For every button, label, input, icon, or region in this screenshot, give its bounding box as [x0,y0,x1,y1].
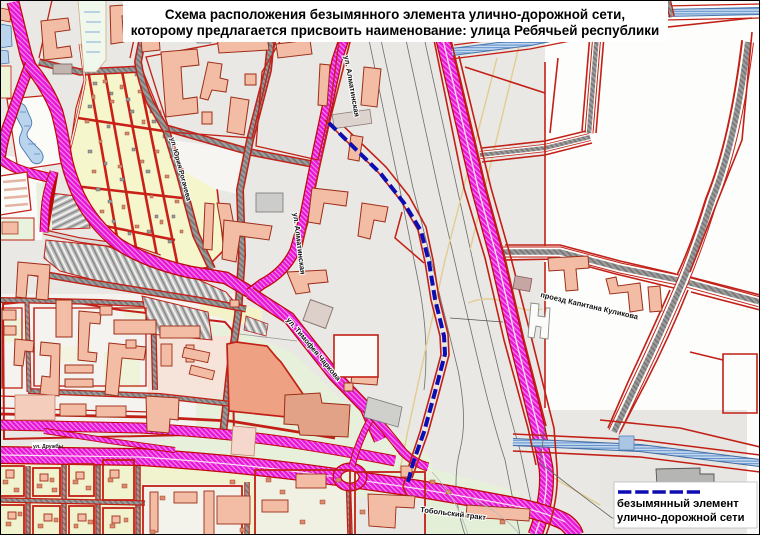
svg-text:ул. Дружбы: ул. Дружбы [33,443,64,450]
svg-text:которому предлагается присвоит: которому предлагается присвоить наименов… [131,23,659,38]
svg-text:улично-дорожной сети: улично-дорожной сети [617,512,745,524]
svg-text:безымянный элемент: безымянный элемент [617,498,739,510]
svg-text:Схема расположения безымянного: Схема расположения безымянного элемента … [165,7,625,22]
